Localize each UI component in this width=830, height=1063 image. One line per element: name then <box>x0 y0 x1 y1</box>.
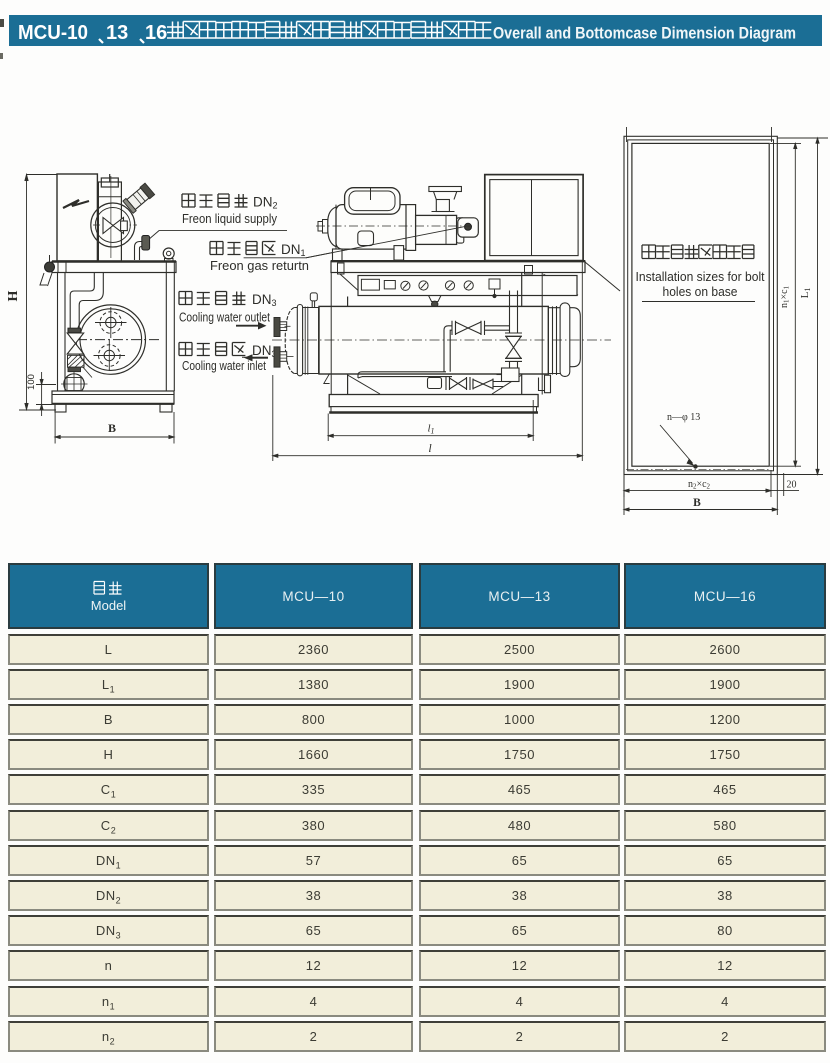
svg-text:DN3: DN3 <box>252 292 277 308</box>
svg-text:H: H <box>6 290 21 301</box>
svg-text:100: 100 <box>26 374 37 390</box>
svg-text:DN1: DN1 <box>281 242 306 258</box>
svg-text:MCU-10: MCU-10 <box>18 22 88 44</box>
svg-text:l1: l1 <box>427 423 434 436</box>
svg-text:l: l <box>428 441 432 455</box>
svg-text:Cooling water inlet: Cooling water inlet <box>182 359 266 373</box>
svg-text:Installation sizes for bolt: Installation sizes for bolt <box>636 270 766 284</box>
svg-text:20: 20 <box>787 480 797 491</box>
svg-text:16: 16 <box>145 22 167 44</box>
svg-text:13: 13 <box>106 22 128 44</box>
svg-text:holes on base: holes on base <box>663 285 738 299</box>
svg-text:L1: L1 <box>799 288 812 299</box>
svg-text:DN3: DN3 <box>252 343 277 359</box>
svg-text:Cooling water outlet: Cooling water outlet <box>179 311 270 325</box>
svg-text:n—φ 13: n—φ 13 <box>667 412 700 423</box>
svg-text:n2×c2: n2×c2 <box>688 479 711 491</box>
svg-text:n1×c1: n1×c1 <box>779 285 791 308</box>
svg-text:Overall and Bottomcase Dime: Overall and Bottomcase Dimension Diagram <box>493 25 796 43</box>
svg-text:Freon gas returtn: Freon gas returtn <box>210 259 309 273</box>
svg-text:B: B <box>693 497 701 509</box>
svg-text:B: B <box>108 421 116 435</box>
svg-text:Freon liquid supply: Freon liquid supply <box>182 212 278 226</box>
svg-text:DN2: DN2 <box>253 195 278 211</box>
